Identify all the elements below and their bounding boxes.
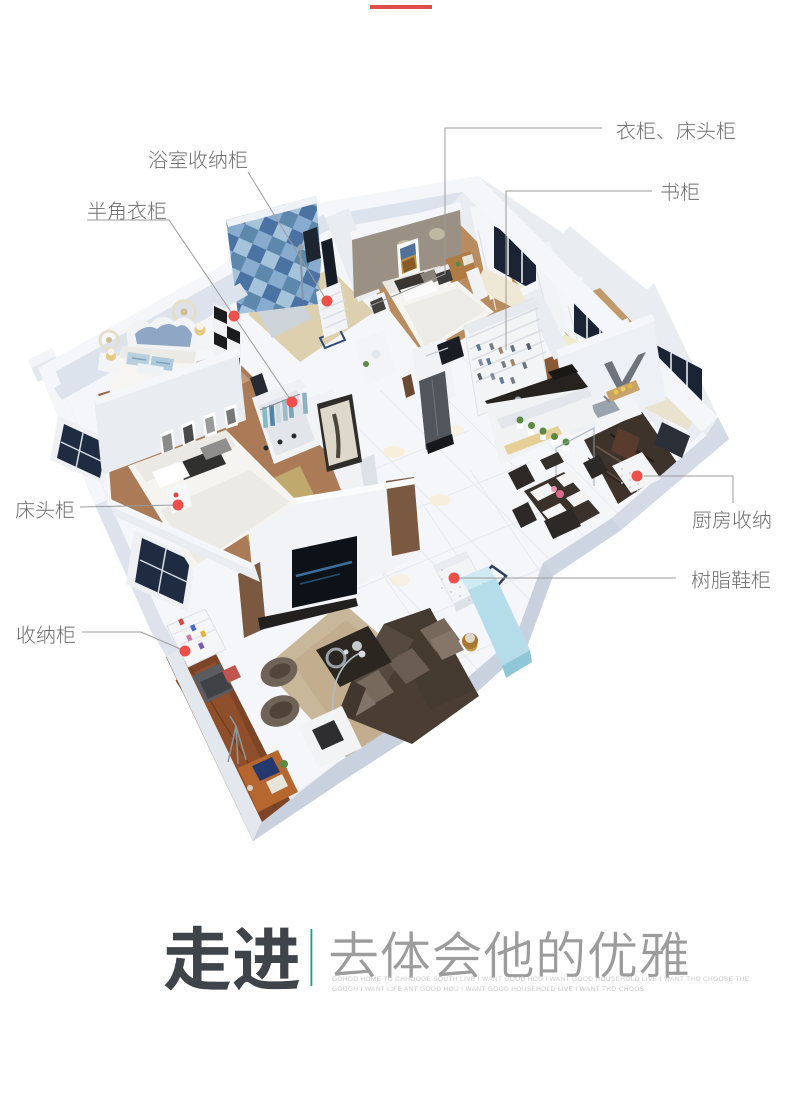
svg-text:GOUGH I WANT LIFE ANT GOOD HOU: GOUGH I WANT LIFE ANT GOOD HOU I WANT GO… xyxy=(332,986,645,993)
svg-text:GOHOD HOME TO CHHOOGE SOUTH LI: GOHOD HOME TO CHHOOGE SOUTH LIVE I WANT … xyxy=(332,976,750,983)
